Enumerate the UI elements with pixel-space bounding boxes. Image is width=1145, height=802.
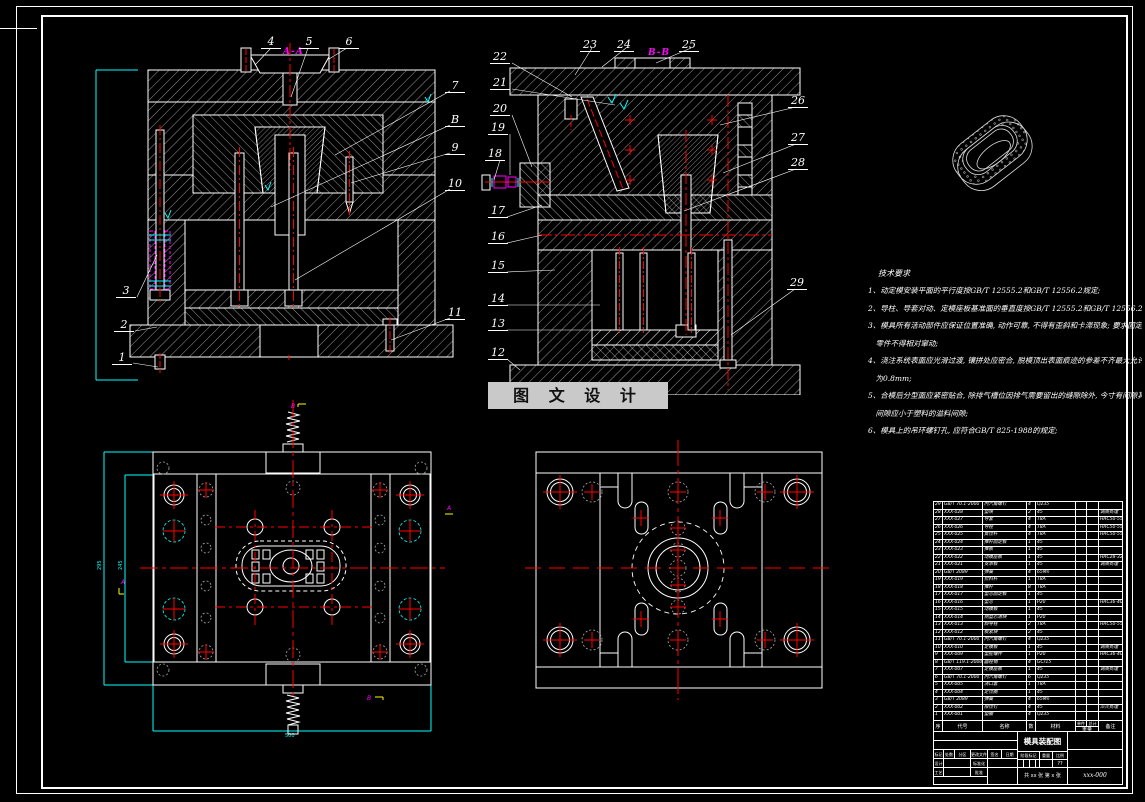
bom-cell-name: 动模座板 [983, 555, 1027, 562]
bom-cell-no: 26 [934, 525, 943, 532]
bom-row: 28 XXX-028 垫块 2 45 调质处理 [934, 510, 1122, 518]
bom-cell-total-weight [1087, 540, 1099, 547]
bom-header-unit: 单件 [1076, 721, 1087, 726]
bom-cell-qty: 1 [1027, 615, 1036, 622]
bom-row: 11 GB/T 70.1-2000 内六角螺钉 4 Q235 [934, 637, 1122, 645]
bom-cell-remark: 调质处理 [1099, 667, 1122, 674]
technical-requirements-title: 技术要求 [868, 268, 1142, 279]
bom-cell-name: 斜导柱 [983, 622, 1027, 629]
bom-cell-name: 垫块 [983, 510, 1027, 517]
bom-cell-code: XXX-022 [943, 555, 983, 562]
bom-cell-code: XXX-014 [943, 615, 983, 622]
bom-cell-remark [1099, 675, 1122, 682]
callout-27: 27 [788, 132, 808, 145]
bom-cell-remark: HRC50-55 [1099, 532, 1122, 539]
bom-cell-unit-weight [1076, 667, 1087, 674]
bom-cell-code: XXX-004 [943, 690, 983, 697]
tb-label-count: 处数 [944, 750, 955, 759]
bom-cell-total-weight [1087, 607, 1099, 614]
bom-cell-code: XXX-007 [943, 667, 983, 674]
bom-cell-material: GCr15 [1036, 660, 1076, 667]
bom-cell-name: 定位圈 [983, 690, 1027, 697]
bom-cell-material: T8A [1036, 682, 1076, 689]
bom-cell-remark [1099, 592, 1122, 599]
tb-label-doc-no: 更改文件号 [971, 750, 988, 759]
bom-cell-no: 21 [934, 562, 943, 569]
bom-cell-code: XXX-018 [943, 585, 983, 592]
bom-cell-code: XXX-019 [943, 577, 983, 584]
bom-cell-no: 16 [934, 600, 943, 607]
callout-26: 26 [788, 95, 808, 108]
bom-cell-material: T8A [1036, 585, 1076, 592]
bom-cell-total-weight [1087, 532, 1099, 539]
bom-cell-code: XXX-016 [943, 600, 983, 607]
bom-cell-code: XXX-009 [943, 652, 983, 659]
bom-cell-name: 复位杆 [983, 532, 1027, 539]
bom-cell-qty: 4 [1027, 712, 1036, 720]
bom-cell-remark [1099, 570, 1122, 577]
bom-cell-total-weight [1087, 510, 1099, 517]
bom-cell-remark: HRC28-32 [1099, 555, 1122, 562]
tb-cell-company [1068, 732, 1122, 750]
callout-4: 4 [261, 36, 281, 49]
bom-cell-unit-weight [1076, 712, 1087, 720]
bom-row: 13 XXX-013 斜导柱 2 T8A HRC50-55 [934, 622, 1122, 630]
bom-cell-qty: 1 [1027, 562, 1036, 569]
part-3d-isometric [930, 88, 1050, 208]
bom-cell-remark [1099, 660, 1122, 667]
tb-cell-standard-sign [988, 759, 1018, 768]
bom-cell-qty: 2 [1027, 510, 1036, 517]
bom-cell-no: 6 [934, 675, 943, 682]
bom-cell-unit-weight [1076, 502, 1087, 509]
bom-cell-name: 型芯 [983, 600, 1027, 607]
callout-6: 6 [339, 36, 359, 49]
bom-cell-unit-weight [1076, 600, 1087, 607]
bom-cell-name: 型芯固定板 [983, 592, 1027, 599]
bom-cell-qty: 1 [1027, 667, 1036, 674]
bom-cell-material: 65Mn [1036, 570, 1076, 577]
bom-cell-total-weight [1087, 517, 1099, 524]
bom-cell-unit-weight [1076, 517, 1087, 524]
bom-cell-unit-weight [1076, 630, 1087, 637]
callout-21: 21 [490, 77, 510, 90]
bom-cell-code: XXX-012 [943, 630, 983, 637]
bom-cell-no: 28 [934, 510, 943, 517]
bom-cell-code: GB/T 70.1-2000 [943, 675, 983, 682]
bom-row: 12 XXX-012 楔紧块 2 45 [934, 630, 1122, 638]
tb-label-weight: 重量 [1040, 752, 1053, 760]
bom-cell-name: 内六角螺钉 [983, 675, 1027, 682]
bom-cell-code: GB/T 119.1-2000 [943, 660, 983, 667]
bom-cell-unit-weight [1076, 705, 1087, 712]
bom-cell-remark [1099, 607, 1122, 614]
bom-cell-total-weight [1087, 652, 1099, 659]
bom-cell-name: 浇口套 [983, 682, 1027, 689]
bom-cell-no: 3 [934, 697, 943, 704]
bom-cell-name: 拉料杆 [983, 577, 1027, 584]
bom-cell-code: XXX-015 [943, 607, 983, 614]
bom-cell-remark [1099, 690, 1122, 697]
plan-view-middle [525, 440, 835, 700]
bom-cell-remark: HRC50-55 [1099, 525, 1122, 532]
bom-cell-material: P20 [1036, 652, 1076, 659]
bom-cell-total-weight [1087, 705, 1099, 712]
technical-requirement-line: 零件不得相对窜动; [868, 335, 1142, 353]
bom-cell-code: XXX-028 [943, 510, 983, 517]
bom-cell-material: 45 [1036, 555, 1076, 562]
bom-cell-no: 14 [934, 615, 943, 622]
bom-cell-material: 45 [1036, 562, 1076, 569]
bom-cell-total-weight [1087, 675, 1099, 682]
bom-cell-qty: 4 [1027, 532, 1036, 539]
bom-cell-remark: HRC36-40 [1099, 652, 1122, 659]
bom-cell-total-weight [1087, 645, 1099, 652]
bom-cell-qty: 4 [1027, 517, 1036, 524]
bom-cell-material: 45 [1036, 667, 1076, 674]
bom-row: 27 XXX-027 导套 4 T8A HRC50-55 [934, 517, 1122, 525]
bom-cell-material: 45 [1036, 540, 1076, 547]
bom-cell-material: 45 [1036, 705, 1076, 712]
bom-cell-total-weight [1087, 630, 1099, 637]
bom-cell-unit-weight [1076, 615, 1087, 622]
bom-cell-unit-weight [1076, 570, 1087, 577]
bom-cell-remark [1099, 577, 1122, 584]
bom-cell-unit-weight [1076, 652, 1087, 659]
bom-cell-code: GB/T 2089 [943, 570, 983, 577]
callout-13: 13 [488, 318, 508, 331]
bom-cell-unit-weight [1076, 697, 1087, 704]
callout-5: 5 [299, 36, 319, 49]
bom-cell-remark [1099, 637, 1122, 644]
tb-label-date: 日期 [1002, 750, 1018, 759]
bom-cell-name: 弹簧 [983, 697, 1027, 704]
bom-cell-qty: 8 [1027, 585, 1036, 592]
bom-row: 25 XXX-025 复位杆 4 T8A HRC50-55 [934, 532, 1122, 540]
bom-cell-code: GB/T 70.1-2000 [943, 502, 983, 509]
tb-label-process: 工艺 [934, 768, 944, 777]
bom-row: 29 GB/T 70.1-2000 内六角螺钉 4 Q235 [934, 502, 1122, 510]
tb-label-standard: 标准化 [971, 759, 988, 768]
bom-cell-remark: 调质处理 [1099, 645, 1122, 652]
bom-cell-qty: 4 [1027, 705, 1036, 712]
bom-cell-name: 推杆固定板 [983, 540, 1027, 547]
bom-cell-no: 7 [934, 667, 943, 674]
bom-cell-qty: 4 [1027, 697, 1036, 704]
bom-cell-total-weight [1087, 622, 1099, 629]
bom-cell-remark [1099, 615, 1122, 622]
bom-cell-total-weight [1087, 547, 1099, 554]
bom-cell-qty: 2 [1027, 630, 1036, 637]
bom-cell-remark [1099, 682, 1122, 689]
technical-requirement-line: 2、导柱、导套对动、定模座板基准面的垂直度按GB/T 12555.2和GB/T … [868, 300, 1142, 318]
callout-11: 11 [445, 307, 465, 320]
callout-20: 20 [490, 103, 510, 116]
tb-label-stage: 阶段标记 [1018, 752, 1040, 760]
bom-cell-no: 17 [934, 592, 943, 599]
bom-cell-name: 圆柱销 [983, 660, 1027, 667]
bom-row: 19 XXX-019 拉料杆 1 T8A [934, 577, 1122, 585]
bom-cell-material: 45 [1036, 510, 1076, 517]
bom-cell-qty: 1 [1027, 547, 1036, 554]
bom-cell-name: 动模板 [983, 607, 1027, 614]
bom-cell-material: P20 [1036, 615, 1076, 622]
cad-drawing-canvas: 245 [0, 0, 1145, 802]
bom-cell-no: 23 [934, 547, 943, 554]
bom-cell-name: 弹簧 [983, 570, 1027, 577]
bom-rows: 29 GB/T 70.1-2000 内六角螺钉 4 Q235 28 XXX-02… [934, 502, 1122, 720]
bom-cell-remark [1099, 540, 1122, 547]
callout-19: 19 [488, 122, 508, 135]
bom-cell-total-weight [1087, 555, 1099, 562]
bom-row: 15 XXX-015 动模板 1 45 [934, 607, 1122, 615]
bom-cell-name: 楔紧块 [983, 630, 1027, 637]
bom-cell-name: 导柱 [983, 525, 1027, 532]
mark-b-bottom: B [367, 695, 371, 702]
plan-view-left: 295 245 500 [95, 400, 485, 746]
callout-9: 9 [445, 142, 465, 155]
bom-cell-total-weight [1087, 600, 1099, 607]
bom-row: 23 XXX-023 推板 1 45 [934, 547, 1122, 555]
technical-requirements-lines: 1、动定模安装平面的平行度按GB/T 12555.2和GB/T 12556.2规… [868, 282, 1142, 440]
bom-cell-qty: 1 [1027, 607, 1036, 614]
bom-cell-code: XXX-002 [943, 705, 983, 712]
bom-cell-qty: 4 [1027, 525, 1036, 532]
tb-rev-row-2 [934, 741, 1018, 750]
bom-cell-code: XXX-027 [943, 517, 983, 524]
bom-cell-material: Q235 [1036, 675, 1076, 682]
bom-cell-name: 推杆 [983, 585, 1027, 592]
tb-label-approve: 批准 [971, 768, 988, 777]
bom-cell-unit-weight [1076, 607, 1087, 614]
mark-a-right: A [446, 505, 451, 512]
bom-cell-material: Q235 [1036, 502, 1076, 509]
bom-cell-name: 内六角螺钉 [983, 637, 1027, 644]
bom-cell-material: 45 [1036, 607, 1076, 614]
bom-cell-material: 65Mn [1036, 697, 1076, 704]
bom-cell-unit-weight [1076, 532, 1087, 539]
bom-cell-code: XXX-026 [943, 525, 983, 532]
bom-cell-code: XXX-024 [943, 540, 983, 547]
bom-cell-code: XXX-005 [943, 682, 983, 689]
bom-cell-qty: 6 [1027, 675, 1036, 682]
callout-15: 15 [488, 260, 508, 273]
bom-cell-total-weight [1087, 592, 1099, 599]
bom-row: 8 GB/T 119.1-2000 圆柱销 4 GCr15 [934, 660, 1122, 668]
bom-row: 9 XXX-009 型腔镶件 1 P20 HRC36-40 [934, 652, 1122, 660]
bom-row: 4 XXX-004 定位圈 1 45 [934, 690, 1122, 698]
tb-label-scale: 比例 [1053, 752, 1068, 760]
callout-14: 14 [488, 293, 508, 306]
bom-cell-no: 1 [934, 712, 943, 720]
bom-cell-unit-weight [1076, 637, 1087, 644]
tb-label-sign: 签名 [988, 750, 1002, 759]
tb-scale-value: ?? [1053, 760, 1068, 768]
bom-cell-unit-weight [1076, 585, 1087, 592]
bom-row: 1 XXX-001 垫圈 4 Q235 [934, 712, 1122, 720]
bom-row: 16 XXX-016 型芯 1 P20 HRC36-40 [934, 600, 1122, 608]
tb-drawing-title: 模具装配图 [1018, 732, 1068, 752]
bom-row: 10 XXX-010 定模板 1 45 调质处理 [934, 645, 1122, 653]
callout-28: 28 [788, 157, 808, 170]
bom-cell-name: 内六角螺钉 [983, 502, 1027, 509]
callout-3: 3 [116, 285, 136, 298]
bom-cell-material: T8A [1036, 622, 1076, 629]
bom-row: 7 XXX-007 定模座板 1 45 调质处理 [934, 667, 1122, 675]
bom-cell-code: GB/T 70.1-2000 [943, 637, 983, 644]
bom-row: 14 XXX-014 侧型芯滑块 1 P20 [934, 615, 1122, 623]
bom-cell-remark: HRC36-40 [1099, 600, 1122, 607]
bom-cell-total-weight [1087, 682, 1099, 689]
bom-cell-total-weight [1087, 570, 1099, 577]
bom-cell-qty: 1 [1027, 645, 1036, 652]
bom-cell-remark [1099, 697, 1122, 704]
bom-row: 17 XXX-017 型芯固定板 1 45 [934, 592, 1122, 600]
bom-cell-unit-weight [1076, 547, 1087, 554]
bom-cell-material: 45 [1036, 547, 1076, 554]
section-view-b [480, 35, 830, 395]
bom-cell-code: XXX-025 [943, 532, 983, 539]
tb-label-zone: 分区 [955, 750, 971, 759]
tb-weight-value [1040, 760, 1053, 768]
callout-7: 7 [445, 80, 465, 93]
tb-label-design: 设计 [934, 759, 944, 768]
bom-cell-no: 24 [934, 540, 943, 547]
callout-17: 17 [488, 205, 508, 218]
bom-cell-name: 导套 [983, 517, 1027, 524]
bom-cell-unit-weight [1076, 555, 1087, 562]
bom-cell-material: T8A [1036, 525, 1076, 532]
dim-plan-left-height: 295 [97, 560, 103, 570]
tb-rev-row-1 [934, 732, 1018, 741]
bom-cell-total-weight [1087, 585, 1099, 592]
bom-cell-name: 推板 [983, 547, 1027, 554]
bom-row: 6 GB/T 70.1-2000 内六角螺钉 6 Q235 [934, 675, 1122, 683]
callout-12: 12 [488, 347, 508, 360]
bom-cell-qty: 1 [1027, 555, 1036, 562]
callout-24: 24 [614, 39, 634, 52]
bom-cell-no: 2 [934, 705, 943, 712]
tb-cell-approve-sign [988, 768, 1018, 784]
bom-cell-unit-weight [1076, 690, 1087, 697]
bom-cell-qty: 1 [1027, 577, 1036, 584]
bom-cell-unit-weight [1076, 682, 1087, 689]
title-block: 标记 处数 分区 更改文件号 签名 日期 设计 标准化 工艺 批准 模具装配图 … [933, 731, 1123, 785]
bom-row: 22 XXX-022 动模座板 1 45 HRC28-32 [934, 555, 1122, 563]
bom-row: 21 XXX-021 支承板 1 45 调质处理 [934, 562, 1122, 570]
bom-cell-qty: 1 [1027, 652, 1036, 659]
tb-cell-blank [1068, 750, 1122, 768]
technical-requirements: 技术要求 1、动定模安装平面的平行度按GB/T 12555.2和GB/T 125… [868, 268, 1142, 440]
bom-cell-total-weight [1087, 697, 1099, 704]
bom-cell-qty: 1 [1027, 690, 1036, 697]
technical-requirement-line: 3、模具所有活动部件应保证位置准确, 动作可靠, 不得有歪斜和卡滞现象; 要求固… [868, 317, 1142, 335]
bom-cell-remark [1099, 502, 1122, 509]
tb-sheet-info: 共 xx 张 第 x 张 [1018, 768, 1068, 784]
bom-cell-no: 10 [934, 645, 943, 652]
bom-cell-material: Q235 [1036, 637, 1076, 644]
bom-cell-remark [1099, 712, 1122, 720]
bom-cell-code: XXX-010 [943, 645, 983, 652]
bom-cell-unit-weight [1076, 540, 1087, 547]
bom-row: 18 XXX-018 推杆 8 T8A [934, 585, 1122, 593]
mark-b-top: B [291, 403, 295, 410]
bom-cell-material: T8A [1036, 532, 1076, 539]
section-view-a: 245 [95, 35, 475, 395]
bom-cell-total-weight [1087, 615, 1099, 622]
bom-cell-total-weight [1087, 577, 1099, 584]
sheet-centering-tick [0, 28, 37, 29]
technical-requirement-line: 4、浇注系统表面应光滑过渡, 镶拼处应密合, 脱模顶出表面痕迹的参差不齐最大允许… [868, 352, 1142, 370]
bom-cell-qty: 4 [1027, 502, 1036, 509]
tb-cell-design-sign [944, 759, 971, 768]
bom-cell-no: 8 [934, 660, 943, 667]
bom-cell-no: 12 [934, 630, 943, 637]
tb-cell-process-sign [944, 768, 971, 777]
bom-cell-material: 45 [1036, 630, 1076, 637]
bom-cell-unit-weight [1076, 645, 1087, 652]
bom-cell-no: 15 [934, 607, 943, 614]
technical-requirement-line: 间隙应小于塑料的溢料间隙; [868, 405, 1142, 423]
tb-label-mark: 标记 [934, 750, 944, 759]
bom-cell-code: XXX-023 [943, 547, 983, 554]
bom-cell-name: 定模板 [983, 645, 1027, 652]
bom-cell-material: 45 [1036, 592, 1076, 599]
bom-cell-qty: 4 [1027, 637, 1036, 644]
bom-cell-qty: 1 [1027, 600, 1036, 607]
callout-1: 1 [112, 352, 132, 365]
bom-cell-name: 定模座板 [983, 667, 1027, 674]
bom-cell-remark: 调质处理 [1099, 562, 1122, 569]
bom-cell-unit-weight [1076, 562, 1087, 569]
bom-cell-no: 25 [934, 532, 943, 539]
bom-cell-total-weight [1087, 637, 1099, 644]
section-label-b-b: B-B [648, 48, 670, 58]
callout-2: 2 [114, 319, 134, 332]
bom-cell-name: 型腔镶件 [983, 652, 1027, 659]
technical-requirement-line: 1、动定模安装平面的平行度按GB/T 12555.2和GB/T 12556.2规… [868, 282, 1142, 300]
callout-b: B [445, 114, 465, 127]
bom-header-total: 总计 [1087, 721, 1098, 726]
bom-cell-remark [1099, 630, 1122, 637]
bom-cell-name: 支承板 [983, 562, 1027, 569]
bom-cell-no: 19 [934, 577, 943, 584]
callout-29: 29 [787, 277, 807, 290]
bom-cell-material: T8A [1036, 517, 1076, 524]
bom-cell-code: GB/T 2089 [943, 697, 983, 704]
bom-row: 5 XXX-005 浇口套 1 T8A [934, 682, 1122, 690]
bom-cell-qty: 1 [1027, 592, 1036, 599]
bom-cell-no: 18 [934, 585, 943, 592]
bom-cell-no: 5 [934, 682, 943, 689]
callout-18: 18 [485, 148, 505, 161]
bom-cell-remark [1099, 585, 1122, 592]
bom-cell-name: 限位钉 [983, 705, 1027, 712]
bom-cell-qty: 1 [1027, 682, 1036, 689]
bom-cell-unit-weight [1076, 675, 1087, 682]
bom-cell-qty: 4 [1027, 660, 1036, 667]
technical-requirement-line: 为0.8mm; [868, 370, 1142, 388]
tb-rev-row-3 [934, 777, 988, 784]
bom-row: 26 XXX-026 导柱 4 T8A HRC50-55 [934, 525, 1122, 533]
bom-cell-unit-weight [1076, 525, 1087, 532]
bom-cell-no: 11 [934, 637, 943, 644]
technical-requirement-line: 6、模具上的吊环螺钉孔, 应符合GB/T 825-1988的规定; [868, 422, 1142, 440]
callout-23: 23 [580, 39, 600, 52]
bom-row: 24 XXX-024 推杆固定板 1 45 [934, 540, 1122, 548]
bom-cell-no: 22 [934, 555, 943, 562]
bom-cell-material: T8A [1036, 577, 1076, 584]
